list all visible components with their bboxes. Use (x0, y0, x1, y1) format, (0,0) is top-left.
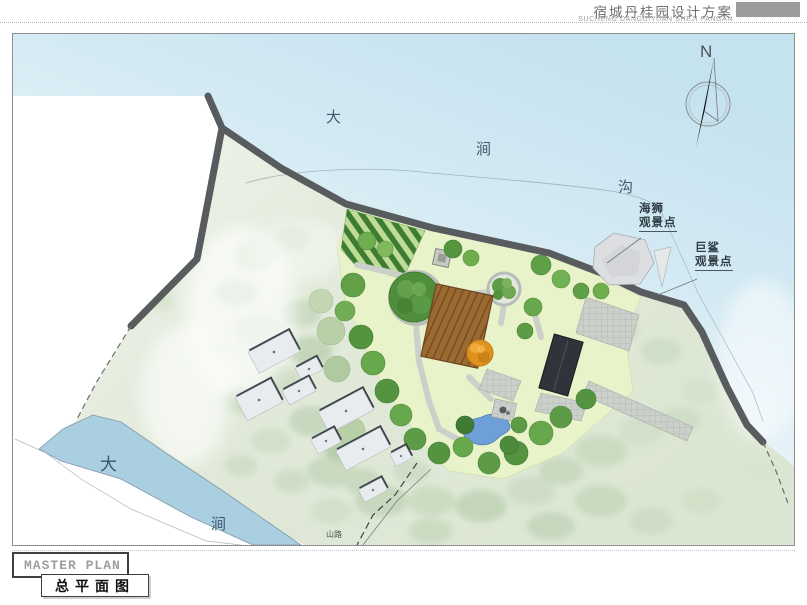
sea-label-char-2: 涧 (476, 138, 492, 159)
master-plan-cn-label: 总平面图 (55, 576, 135, 596)
lake-label-char-2: 涧 (211, 513, 226, 534)
mountain-trail-label: 山路 (326, 529, 342, 540)
header-dotted-rule (0, 22, 807, 23)
header-accent-block (736, 2, 800, 17)
plan-sheet: 宿城丹桂园设计方案 SUCHENG DANGUIYUAN SHEJI FANGA… (0, 0, 807, 605)
master-plan-cn-box: 总平面图 (41, 574, 149, 597)
plan-frame (12, 33, 795, 546)
viewpoint-shark-name: 巨鲨 (695, 240, 733, 254)
viewpoint-sea-lion-suffix: 观景点 (639, 215, 677, 229)
lake-label-char-1: 大 (100, 450, 117, 475)
master-plan-en-label: MASTER PLAN (24, 558, 121, 573)
master-plan-drawing (13, 34, 794, 545)
viewpoint-sea-lion: 海狮 观景点 (639, 201, 677, 232)
sea-label-char-1: 大 (326, 106, 342, 127)
viewpoint-shark: 巨鲨 观景点 (695, 240, 733, 271)
orange-tree (467, 340, 493, 366)
viewpoint-sea-lion-name: 海狮 (639, 201, 677, 215)
sea-label-char-3: 沟 (618, 176, 634, 197)
viewpoint-shark-suffix: 观景点 (695, 254, 733, 268)
footer-dotted-rule (12, 550, 795, 551)
round-flower-bed (488, 273, 520, 305)
compass-north-label: N (700, 42, 713, 62)
